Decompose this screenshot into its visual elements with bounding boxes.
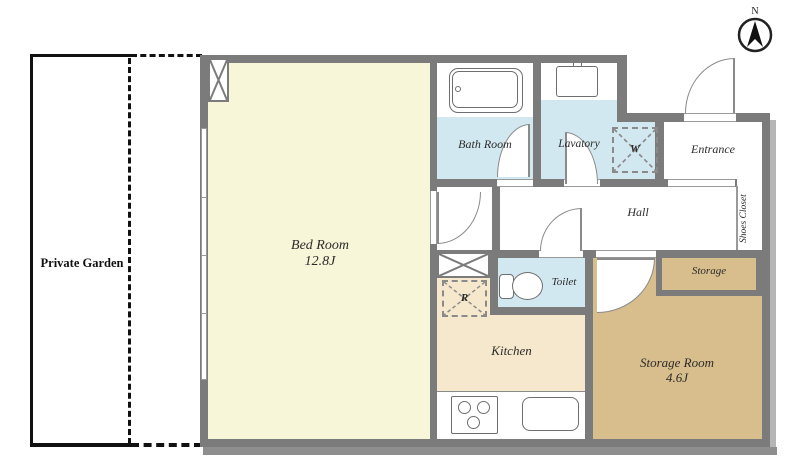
kitchen-label: Kitchen [437, 344, 586, 359]
bed-room-size: 12.8J [305, 254, 336, 269]
washer-box: W [612, 127, 658, 173]
storage-room-label: Storage Room 4.6J [592, 356, 762, 386]
wall-bottom [200, 439, 770, 447]
bed-room-name: Bed Room [291, 238, 349, 253]
pillar-box-bedroom [208, 58, 229, 102]
entrance-label: Entrance [663, 143, 763, 157]
shoes-closet-partition [736, 186, 738, 250]
storage-room-name: Storage Room [640, 355, 714, 370]
bathtub-drain [455, 86, 461, 92]
stove [451, 396, 498, 434]
bathtub-inner [452, 71, 518, 108]
bedroom-door-opening [430, 191, 437, 244]
garden-top-border-solid [30, 54, 131, 57]
storage-room-size: 4.6J [666, 370, 688, 385]
wall-step [617, 55, 627, 122]
stove-burner [458, 401, 471, 414]
lavatory-sink [556, 66, 598, 97]
bath-door-opening [497, 179, 533, 187]
garden-top-border-dashed [131, 54, 202, 57]
wall-hall-stub [492, 186, 500, 250]
bathtub [449, 68, 523, 113]
garden-bottom-border-dashed [131, 443, 202, 447]
entrance-door [685, 58, 735, 113]
hall-label: Hall [598, 206, 678, 220]
lavatory-label: Lavatory [541, 138, 617, 151]
wall-right [762, 113, 770, 447]
toilet-label: Toilet [530, 276, 598, 289]
refrigerator-box: R [442, 280, 487, 317]
garden-bottom-border-solid [30, 443, 131, 447]
wall-toilet-bottom [490, 307, 593, 315]
entrance-door-opening [684, 113, 736, 122]
toilet-door-opening [539, 250, 583, 258]
window-divider [202, 255, 206, 256]
bedroom-window [201, 128, 207, 380]
storage-door-opening [596, 250, 656, 258]
shoes-closet-label: Shoes Closet [739, 188, 761, 249]
north-compass: N [733, 2, 777, 56]
private-garden-area [30, 55, 202, 445]
floor-plan: Private Garden [0, 0, 800, 459]
washer-label: W [614, 143, 656, 156]
garden-inner-dashed-line [128, 58, 131, 444]
window-divider [202, 197, 206, 198]
refrigerator-label: R [444, 292, 485, 305]
pillar-box-kitchen [437, 252, 490, 278]
wall-bath-lav-divider [533, 63, 541, 179]
entrance-hall-threshold [668, 179, 735, 187]
shadow-right [770, 120, 776, 447]
stove-burner [477, 401, 490, 414]
wall-top [200, 55, 627, 63]
shadow-bottom [203, 447, 777, 455]
north-label: N [751, 6, 758, 17]
window-divider [202, 313, 206, 314]
stove-burner [467, 416, 480, 429]
private-garden-label: Private Garden [32, 256, 132, 271]
storage-label: Storage [658, 265, 760, 278]
bath-room-label: Bath Room [437, 138, 533, 152]
kitchen-sink [522, 397, 579, 431]
bed-room-label: Bed Room 12.8J [245, 238, 395, 270]
